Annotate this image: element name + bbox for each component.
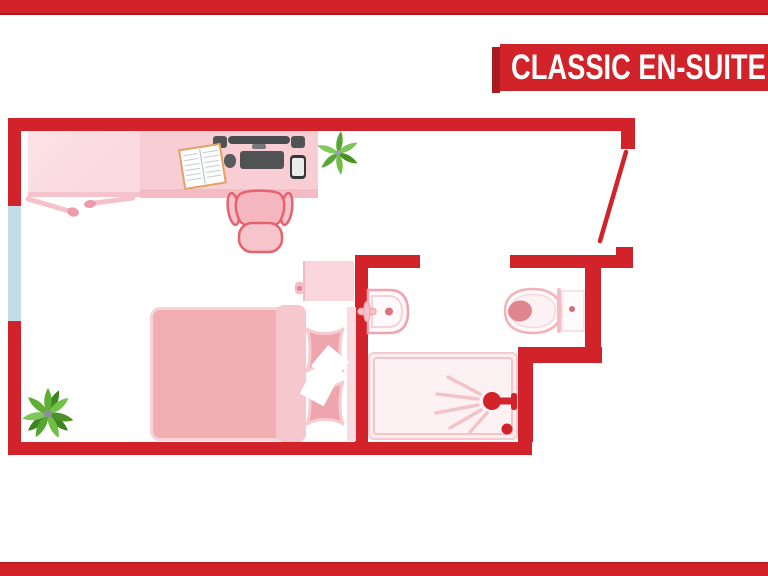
wall-left-lower xyxy=(8,321,21,455)
bed-duvet-fold xyxy=(276,305,306,442)
basin-drain xyxy=(385,308,393,316)
speaker-right xyxy=(291,136,305,148)
monitor xyxy=(228,136,290,144)
desk-leg-left xyxy=(28,199,80,218)
toilet-cistern xyxy=(562,291,584,331)
bathroom-wall-top-right xyxy=(510,255,633,268)
nightstand xyxy=(303,261,354,301)
pillows xyxy=(300,329,349,424)
bathroom-wall-top-left xyxy=(355,255,420,268)
bed-headboard xyxy=(347,307,356,441)
desk-leg-right xyxy=(84,198,133,209)
window xyxy=(8,206,21,321)
bed-duvet xyxy=(150,307,291,441)
bathroom-wall-bottom-right xyxy=(518,363,533,442)
nightstand-knob-dot xyxy=(297,286,302,291)
shower-tray-inner xyxy=(373,357,513,435)
page-title: CLASSIC EN-SUITE xyxy=(511,48,766,88)
top-border-bar xyxy=(0,0,768,15)
desk-return xyxy=(28,131,140,192)
monitor-stand xyxy=(252,144,266,149)
throw-blanket xyxy=(311,345,349,383)
bottom-border-bar xyxy=(0,562,768,576)
toilet-bowl-water xyxy=(507,299,534,323)
wall-left-upper xyxy=(8,118,21,206)
entry-door-jamb-bottom xyxy=(616,247,633,257)
entry-door-jamb-top xyxy=(621,118,635,149)
entry-door-leaf xyxy=(600,152,626,241)
bathroom-wall-left xyxy=(355,255,368,442)
flush-button xyxy=(569,306,575,312)
bathroom-wall-step xyxy=(518,347,602,363)
speaker-left xyxy=(213,136,227,148)
banner-ribbon-fold xyxy=(492,47,500,93)
office-chair xyxy=(226,191,294,252)
desk-front-edge xyxy=(140,189,318,198)
toilet xyxy=(505,288,584,333)
wall-top xyxy=(8,118,635,131)
mouse xyxy=(224,154,236,168)
floor-plan-page: CLASSIC EN-SUITE xyxy=(0,0,768,576)
toilet-seat-hinge xyxy=(557,288,561,333)
smartphone-screen xyxy=(292,158,304,176)
keyboard xyxy=(240,151,284,169)
title-banner: CLASSIC EN-SUITE xyxy=(500,44,768,91)
desk-return-edge xyxy=(28,192,140,197)
wall-bottom xyxy=(8,442,532,455)
desk-plant-icon xyxy=(316,131,359,176)
floor-plant-icon xyxy=(22,388,74,439)
